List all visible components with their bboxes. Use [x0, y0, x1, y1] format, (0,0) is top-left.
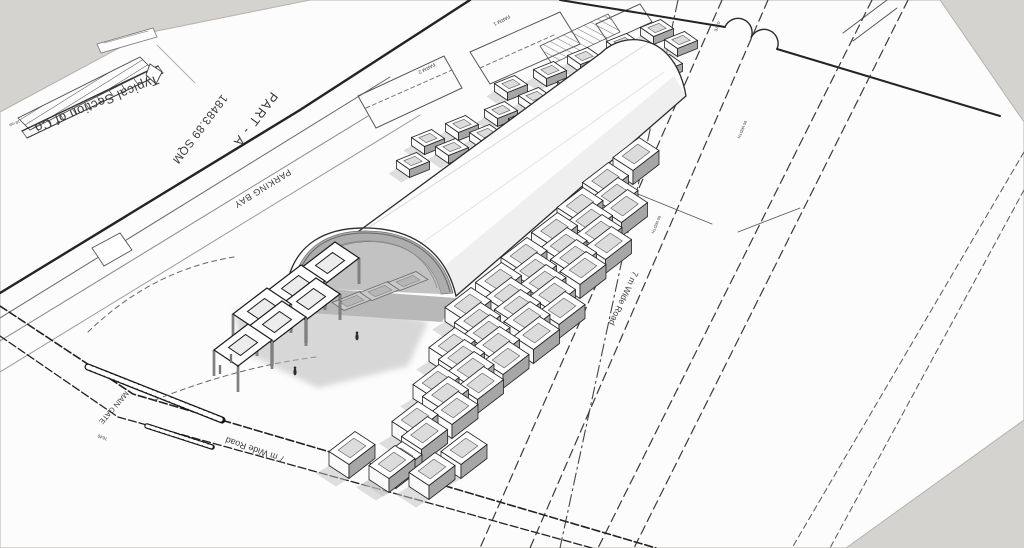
- person-figure: [293, 369, 296, 376]
- viewport-3d-site-model[interactable]: Typical Section of Co PART - A 18483.89 …: [0, 0, 1024, 548]
- sketchup-3d-viewport-wrapper: Typical Section of Co PART - A 18483.89 …: [0, 0, 1024, 548]
- person-figure: [355, 334, 358, 341]
